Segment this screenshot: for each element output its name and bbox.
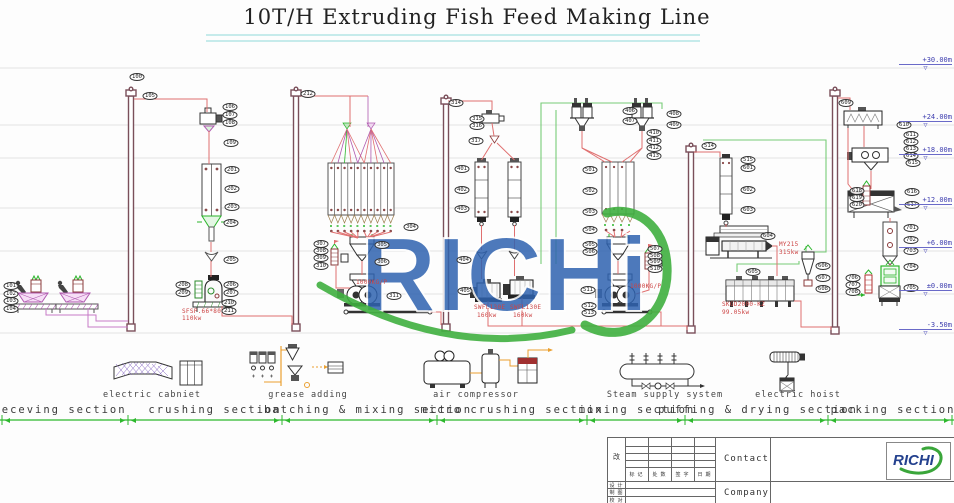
equipment-tag: 503 — [583, 208, 598, 216]
elevation-triangle-icon — [899, 248, 952, 254]
revision-label: 改 — [613, 452, 620, 462]
elevation-marker: +6.00m — [899, 239, 952, 254]
equipment-tag: 413 — [647, 152, 662, 160]
model-note: 160kw — [513, 312, 533, 319]
equipment-tag: 202 — [225, 185, 240, 193]
equipment-tag: 412 — [647, 144, 662, 152]
column-header-mark: 标 记 — [629, 471, 642, 478]
equipment-tag: 405 — [458, 287, 473, 295]
bagging-machine — [879, 286, 900, 306]
equipment-tag: 304 — [404, 223, 419, 231]
equipment-tag: 310 — [314, 262, 329, 270]
equipment-tag: 100 — [130, 73, 145, 81]
equipment-tag: 401 — [455, 165, 470, 173]
equipment-tag: 105 — [143, 92, 158, 100]
equipment-tag: 306 — [375, 258, 390, 266]
equipment-tag: 513 — [582, 309, 597, 317]
equipment-tag: 602 — [741, 186, 756, 194]
magnet-distributor — [200, 108, 222, 132]
equipment-tag: 701 — [904, 224, 919, 232]
equipment-tag: 603 — [741, 206, 756, 214]
grease-injector — [331, 240, 348, 265]
equipment-tag: 316 — [470, 122, 485, 130]
equipment-label: air compressor — [433, 390, 519, 400]
title-block: 改 标 记 处 数 签 字 日 期 设 计 制 图 校 对 Contact Co… — [607, 437, 954, 503]
elevation-marker: +18.00m — [899, 146, 952, 161]
elevation-marker: +30.00m — [899, 56, 952, 71]
section-label: micro crushing section — [420, 404, 603, 416]
equipment-tag: 204 — [224, 219, 239, 227]
equipment-tag: 106 — [223, 103, 238, 111]
equipment-tag: 409 — [667, 121, 682, 129]
equipment-tag: 601 — [741, 164, 756, 172]
model-note: SFSP.66*80 — [182, 308, 221, 315]
equipment-tag: 616 — [905, 188, 920, 196]
elevation-triangle-icon — [899, 65, 952, 71]
column-header-count: 处 数 — [652, 471, 665, 478]
column-header-signature: 签 字 — [675, 471, 688, 478]
surge-bin — [883, 222, 897, 265]
equipment-tag: 407 — [623, 117, 638, 125]
section-label: packing section — [831, 404, 954, 416]
equipment-tag: 209 — [176, 289, 191, 297]
equipment-tag: 502 — [583, 187, 598, 195]
equipment-tag: 208 — [176, 281, 191, 289]
model-note: 1000KG/P — [356, 279, 387, 286]
auxiliary-equipment — [114, 344, 805, 391]
equipment-tag: 402 — [455, 186, 470, 194]
contact-label: Contact — [724, 454, 769, 464]
electric-cabinet — [114, 361, 202, 385]
equipment-tag: 101 — [4, 282, 19, 290]
equipment-tag: 514 — [702, 142, 717, 150]
equipment-label: electric cabniet — [103, 390, 201, 400]
equipment-tag: 107 — [223, 111, 238, 119]
equipment-tag: 604 — [761, 232, 776, 240]
equipment-tag: 211 — [222, 307, 237, 315]
equipment-tag: 605 — [746, 268, 761, 276]
equipment-tag: 311 — [387, 292, 402, 300]
equipment-tag: 104 — [4, 305, 19, 313]
extruder — [706, 226, 773, 258]
model-note: 110kw — [182, 315, 202, 322]
model-note: SWFL130E — [474, 304, 505, 311]
grease-adding-station — [250, 344, 343, 388]
equipment-label: grease adding — [268, 390, 348, 400]
equipment-tag: 309 — [314, 254, 329, 262]
equipment-tag: 108 — [223, 119, 238, 127]
equipment-tag: 408 — [667, 110, 682, 118]
model-note: MY215 — [779, 241, 799, 248]
equipment-tag: 607 — [816, 274, 831, 282]
elevation-marker: +12.00m — [899, 196, 952, 211]
equipment-tag: 317 — [469, 137, 484, 145]
richi-watermark: RICHi — [360, 222, 649, 328]
equipment-tag: 501 — [583, 166, 598, 174]
electric-hoist-unit — [770, 352, 805, 391]
equipment-tag: 410 — [647, 129, 662, 137]
puffing-drying-machines — [706, 154, 814, 307]
elevation-triangle-icon — [899, 205, 952, 211]
equipment-tag: 210 — [222, 299, 237, 307]
equipment-tag: 207 — [224, 289, 239, 297]
equipment-tag: 608 — [816, 285, 831, 293]
elevation-triangle-icon — [899, 330, 952, 336]
title-underline — [206, 35, 700, 41]
equipment-tag: 506 — [583, 248, 598, 256]
cooler — [844, 107, 882, 129]
equipment-tag: 403 — [455, 205, 470, 213]
company-label: Company — [724, 488, 769, 498]
section-label: crushing section — [148, 404, 281, 416]
logo-swoosh-icon — [887, 443, 950, 479]
equipment-tag: 305 — [375, 241, 390, 249]
row-label-design: 设 计 — [609, 482, 622, 489]
equipment-label: Steam supply system — [607, 390, 723, 400]
equipment-tag: 504 — [583, 226, 598, 234]
equipment-tag: 708 — [846, 288, 861, 296]
equipment-tag: 404 — [457, 256, 472, 264]
equipment-tag: 103 — [4, 297, 19, 305]
crumbler — [847, 148, 888, 170]
model-note: SKGD2000-KZ — [722, 301, 765, 308]
equipment-tag: 704 — [904, 263, 919, 271]
model-note: 160kw — [477, 312, 497, 319]
equipment-tag: 620 — [850, 201, 865, 209]
air-compressor-unit — [424, 348, 553, 388]
elevation-marker: -3.50m — [899, 321, 952, 336]
elevation-triangle-icon — [899, 155, 952, 161]
equipment-tag: 606 — [816, 262, 831, 270]
distribution-lines — [331, 96, 390, 163]
equipment-tag: 515 — [741, 156, 756, 164]
elevation-marker: ±0.00m — [899, 282, 952, 297]
equipment-tag: 212 — [301, 90, 316, 98]
model-note: 99.05kw — [722, 309, 749, 316]
model-note: SWFL130E — [510, 304, 541, 311]
row-label-drawing: 制 图 — [609, 489, 622, 496]
section-label: receving section — [0, 404, 127, 416]
equipment-tag: 511 — [581, 286, 596, 294]
section-label: puffing & drying section — [658, 404, 858, 416]
elevation-triangle-icon — [899, 291, 952, 297]
filter — [863, 181, 870, 205]
equipment-label: electric hoist — [755, 390, 841, 400]
model-note: 1000KG/P — [630, 283, 661, 290]
steam-boiler — [620, 353, 705, 389]
equipment-tag: 510 — [648, 265, 663, 273]
equipment-tag: 406 — [623, 107, 638, 115]
row-label-check: 校 对 — [609, 497, 622, 503]
drawing-canvas: 10T/H Extruding Fish Feed Making Line — [0, 0, 954, 503]
equipment-tag: 201 — [225, 166, 240, 174]
logo-box: RICHI — [886, 442, 951, 480]
equipment-tag: 205 — [224, 256, 239, 264]
equipment-tag: 314 — [449, 99, 464, 107]
column-header-date: 日 期 — [697, 471, 710, 478]
page-title: 10T/H Extruding Fish Feed Making Line — [0, 5, 954, 29]
model-note: 315kw — [779, 249, 799, 256]
equipment-tag: 203 — [225, 203, 240, 211]
equipment-tag: 109 — [224, 139, 239, 147]
equipment-tag: 206 — [224, 281, 239, 289]
elevation-marker: +24.00m — [899, 113, 952, 128]
elevation-triangle-icon — [899, 122, 952, 128]
equipment-tag: 609 — [839, 99, 854, 107]
intake-hopper-unit — [14, 276, 128, 327]
section-divider — [0, 415, 954, 425]
